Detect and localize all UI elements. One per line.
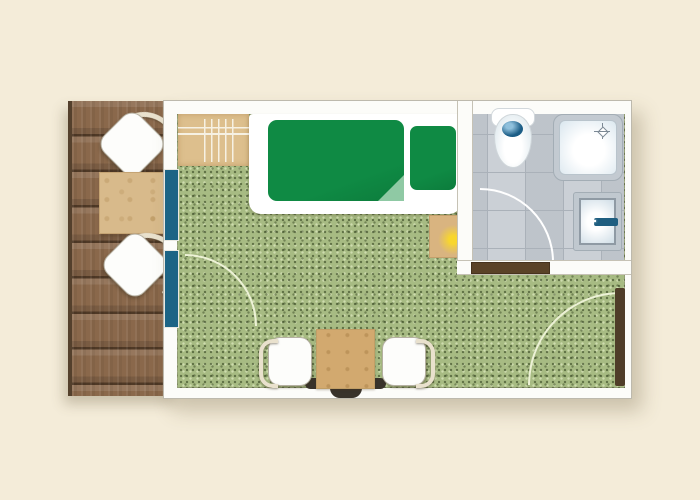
toilet: [489, 108, 535, 168]
dining-chair-right: [382, 337, 426, 386]
deck-side-table: [99, 172, 165, 234]
dining-table: [316, 329, 375, 389]
shower-head-icon: [594, 123, 610, 139]
room-outline: [163, 100, 632, 399]
entry-door-leaf: [615, 288, 625, 386]
faucet-icon: [594, 218, 618, 226]
bathroom-door-swing-arc: [480, 188, 554, 262]
toilet-lid: [502, 121, 523, 137]
floor-plan: [0, 0, 700, 500]
duvet-fold: [378, 175, 404, 201]
bathroom-floor: [471, 114, 624, 261]
bed-pillow: [410, 126, 456, 190]
deck-lounge-chair-top: [102, 114, 160, 172]
bed: [249, 114, 461, 214]
bathroom-door-threshold: [471, 262, 550, 274]
dining-chair-left: [268, 337, 312, 386]
shower: [553, 114, 623, 181]
sliding-door-upper-panel: [164, 169, 179, 241]
bed-duvet: [268, 120, 404, 201]
shower-head-hub: [597, 126, 608, 137]
sink: [573, 192, 622, 251]
sliding-door-lower-panel: [164, 250, 179, 328]
bathroom-wall-vertical: [457, 101, 473, 273]
deck-lounge-chair-bottom: [105, 235, 163, 293]
luggage-rack: [178, 114, 249, 166]
